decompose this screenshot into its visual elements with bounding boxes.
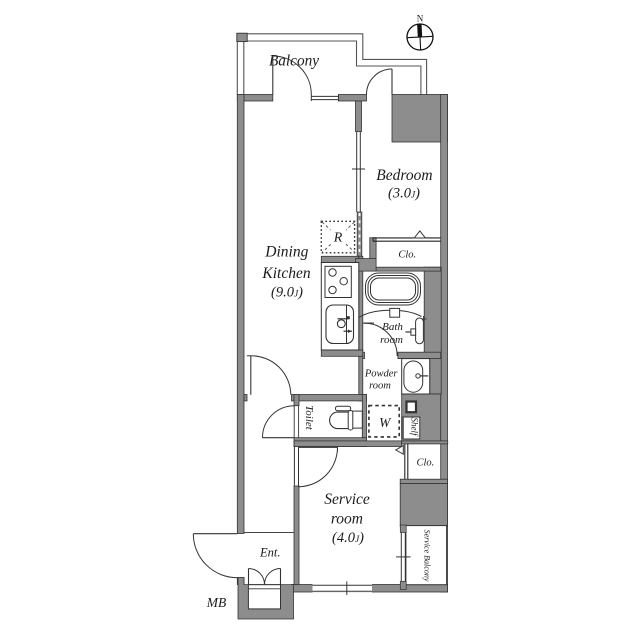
svg-text:Clo.: Clo. bbox=[417, 458, 435, 469]
svg-text:W: W bbox=[379, 415, 392, 430]
svg-text:Bath: Bath bbox=[382, 321, 403, 333]
svg-text:Ent.: Ent. bbox=[259, 546, 280, 560]
svg-text:Dining: Dining bbox=[264, 244, 308, 261]
svg-text:Clo.: Clo. bbox=[398, 250, 416, 261]
svg-text:Kitchen: Kitchen bbox=[261, 265, 310, 282]
svg-text:(3.0J): (3.0J) bbox=[388, 186, 420, 202]
svg-text:N: N bbox=[417, 14, 424, 24]
svg-text:(9.0J): (9.0J) bbox=[271, 285, 303, 301]
svg-text:Service Balcony: Service Balcony bbox=[422, 530, 431, 582]
svg-text:R: R bbox=[333, 231, 343, 246]
svg-text:Shelf: Shelf bbox=[409, 418, 419, 437]
svg-text:room: room bbox=[369, 381, 391, 392]
svg-text:Powder: Powder bbox=[364, 369, 399, 380]
svg-text:Toilet: Toilet bbox=[303, 405, 315, 431]
svg-text:Balcony: Balcony bbox=[269, 53, 319, 70]
svg-text:(4.0J): (4.0J) bbox=[332, 530, 364, 546]
svg-text:Bedroom: Bedroom bbox=[376, 167, 432, 184]
svg-text:Service: Service bbox=[324, 491, 370, 508]
svg-text:room: room bbox=[380, 334, 403, 346]
svg-text:MB: MB bbox=[206, 595, 227, 610]
svg-text:room: room bbox=[331, 511, 363, 528]
